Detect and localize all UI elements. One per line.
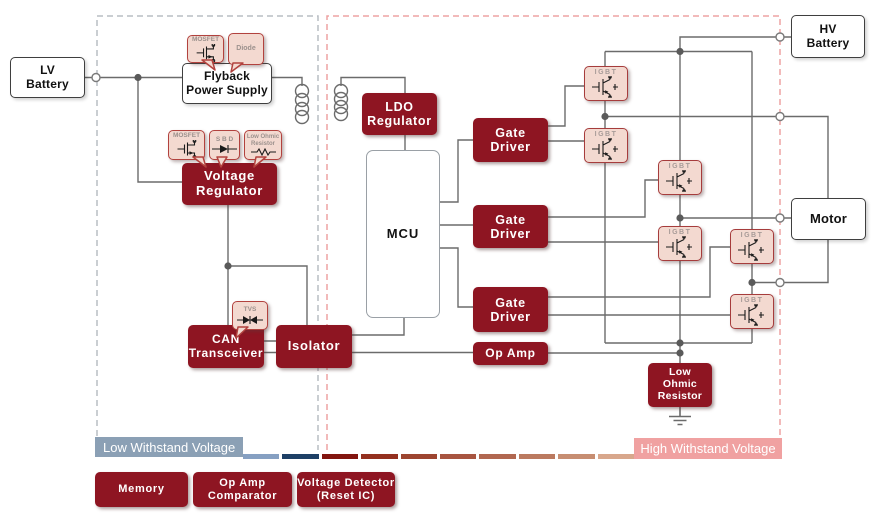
igbt-symbol [592,76,620,98]
legend-voltage-detector-block: Voltage Detector (Reset IC) [297,472,395,507]
igbt-2-block: IGBT [584,128,628,163]
igbt-label: IGBT [669,163,692,171]
gate-driver-1-block: Gate Driver [473,118,548,162]
mosfet-callout-label: MOSFET [173,132,200,139]
gradient-segment [361,454,397,459]
igbt-3-block: IGBT [658,160,702,195]
low-withstand-voltage-bar: Low Withstand Voltage [95,437,243,457]
gradient-segment [243,454,279,459]
mosfet-callout-flyback: MOSFET [187,35,224,63]
flyback-power-supply-block: Flyback Power Supply [182,63,272,104]
igbt-symbol [592,138,620,160]
high-withstand-voltage-bar: High Withstand Voltage [634,438,782,459]
can-transceiver-block: CAN Transceiver [188,325,264,368]
voltage-gradient-bar [243,454,634,459]
mcu-block: MCU [366,150,440,318]
gradient-segment [598,454,634,459]
mosfet-symbol [195,44,217,62]
lv-battery-block: LV Battery [10,57,85,98]
igbt-symbol [666,170,694,192]
isolator-block: Isolator [276,325,352,368]
legend-op-amp-comparator-block: Op Amp Comparator [193,472,292,507]
gradient-segment [440,454,476,459]
igbt-label: IGBT [741,232,764,240]
motor-block: Motor [791,198,866,240]
resistor-symbol [251,148,276,156]
hv-battery-block: HV Battery [791,15,865,58]
low-withstand-voltage-label: Low Withstand Voltage [103,440,235,455]
igbt-symbol [738,304,766,326]
ldo-regulator-block: LDO Regulator [362,93,437,135]
low-ohmic-callout-label: Low Ohmic Resistor [247,134,279,147]
gradient-segment [322,454,358,459]
high-withstand-voltage-label: High Withstand Voltage [640,441,775,456]
schottky-diode-symbol [212,144,237,154]
igbt-symbol [666,236,694,258]
mosfet-callout-label: MOSFET [192,36,219,43]
igbt-label: IGBT [741,297,764,305]
igbt-symbol [738,239,766,261]
igbt-4-block: IGBT [658,226,702,261]
igbt-label: IGBT [595,131,618,139]
sbd-callout: S B D [209,130,240,160]
mosfet-callout-regulator: MOSFET [168,130,205,160]
low-ohmic-resistor-block: Low Ohmic Resistor [648,363,712,407]
tvs-callout: TVS [232,301,268,330]
legend-memory-block: Memory [95,472,188,507]
diode-callout-flyback: Diode [228,33,264,65]
gradient-segment [401,454,437,459]
igbt-label: IGBT [669,229,692,237]
gradient-segment [519,454,555,459]
voltage-regulator-block: Voltage Regulator [182,163,277,205]
block-diagram: LV Battery HV Battery Motor Flyback Powe… [0,0,882,523]
sbd-callout-label: S B D [216,136,233,143]
mosfet-symbol [176,140,198,158]
gradient-segment [479,454,515,459]
igbt-6-block: IGBT [730,294,774,329]
igbt-label: IGBT [595,69,618,77]
gate-driver-3-block: Gate Driver [473,287,548,332]
transformer-primary-coil [296,85,309,124]
op-amp-block: Op Amp [473,342,548,365]
low-ohmic-resistor-callout: Low Ohmic Resistor [244,130,282,160]
ground-symbol [669,407,691,425]
igbt-5-block: IGBT [730,229,774,264]
gradient-segment [558,454,594,459]
gate-driver-2-block: Gate Driver [473,205,548,248]
tvs-callout-label: TVS [244,306,257,313]
tvs-diode-symbol [237,315,263,325]
diode-callout-label: Diode [236,45,255,53]
transformer-secondary-coil [335,85,348,121]
igbt-1-block: IGBT [584,66,628,101]
gradient-segment [282,454,318,459]
